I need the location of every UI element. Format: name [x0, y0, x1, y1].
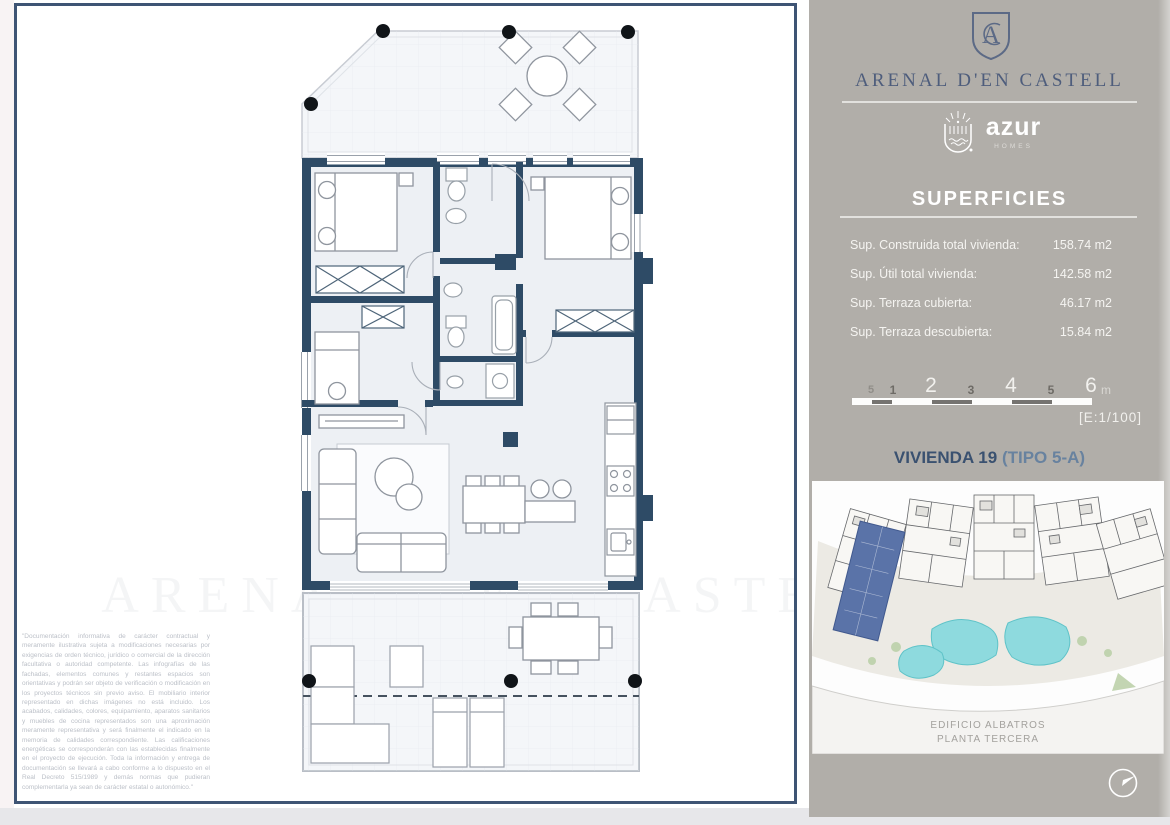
scale-tick: 3 — [968, 384, 975, 396]
row-value: 15.84 m2 — [1060, 325, 1112, 339]
info-sidebar: A ARENAL D'EN CASTELL azur — [809, 0, 1170, 817]
table-row: Sup. Terraza cubierta: 46.17 m2 — [850, 296, 1112, 310]
siteplan-drawing — [812, 481, 1164, 754]
scale-ruler — [852, 398, 1092, 405]
scale-note: [E:1/100] — [1079, 410, 1142, 425]
row-label: Sup. Construida total vivienda: — [850, 238, 1020, 252]
scale-bar: 5 1 2 3 4 5 6 m [E:1/100] — [809, 372, 1170, 432]
table-row: Sup. Construida total vivienda: 158.74 m… — [850, 238, 1112, 252]
row-label: Sup. Terraza descubierta: — [850, 325, 992, 339]
brand-name: ARENAL D'EN CASTELL — [809, 70, 1170, 92]
azur-emblem-icon — [938, 110, 978, 154]
row-value: 142.58 m2 — [1053, 267, 1112, 281]
azur-tagline: HOMES — [994, 143, 1033, 150]
floorplan-panel: ARENAL D'EN CASTELL — [14, 3, 797, 804]
svg-text:A: A — [982, 22, 1000, 49]
unit-name: VIVIENDA 19 — [894, 448, 997, 467]
scale-tick: 5 — [868, 385, 874, 396]
unit-type: (TIPO 5-A) — [1002, 448, 1085, 467]
row-value: 46.17 m2 — [1060, 296, 1112, 310]
shield-monogram-icon: A — [969, 10, 1013, 62]
divider — [840, 216, 1137, 218]
azur-wordmark: azur — [986, 115, 1041, 140]
bedroom-2-bed — [315, 332, 359, 404]
bottom-terrace — [302, 593, 642, 771]
page-left-margin — [0, 0, 14, 825]
row-label: Sup. Terraza cubierta: — [850, 296, 972, 310]
top-windows — [327, 153, 630, 165]
divider — [842, 101, 1137, 103]
row-value: 158.74 m2 — [1053, 238, 1112, 252]
brochure-page: ARENAL D'EN CASTELL — [0, 0, 1170, 825]
superficies-title: SUPERFICIES — [809, 188, 1170, 211]
areas-table: Sup. Construida total vivienda: 158.74 m… — [850, 238, 1112, 354]
floor-name: PLANTA TERCERA — [812, 733, 1164, 747]
scale-tick: 4 — [1005, 375, 1017, 396]
developer-logo: azur HOMES — [809, 110, 1170, 154]
scale-tick: 5 — [1048, 384, 1055, 396]
scale-tick: 2 — [925, 375, 937, 396]
scale-tick: 1 — [890, 384, 897, 396]
scale-unit: m — [1101, 384, 1111, 396]
scale-ticks: 5 1 2 3 4 5 6 m — [809, 372, 1170, 396]
unit-title: VIVIENDA 19 (TIPO 5-A) — [809, 448, 1170, 468]
bedroom-3-bed — [531, 177, 631, 259]
building-name: EDIFICIO ALBATROS — [812, 719, 1164, 733]
table-row: Sup. Útil total vivienda: 142.58 m2 — [850, 267, 1112, 281]
bottom-sliders — [330, 581, 608, 593]
top-terrace — [302, 24, 638, 158]
table-row: Sup. Terraza descubierta: 15.84 m2 — [850, 325, 1112, 339]
siteplan-caption: EDIFICIO ALBATROS PLANTA TERCERA — [812, 719, 1164, 746]
row-label: Sup. Útil total vivienda: — [850, 267, 977, 281]
north-arrow-icon — [1106, 766, 1140, 800]
scale-tick: 6 — [1085, 375, 1097, 396]
siteplan-keymap: EDIFICIO ALBATROS PLANTA TERCERA — [812, 481, 1164, 754]
legal-disclaimer-text: "Documentación informativa de carácter c… — [22, 632, 210, 804]
kitchen — [605, 403, 636, 576]
